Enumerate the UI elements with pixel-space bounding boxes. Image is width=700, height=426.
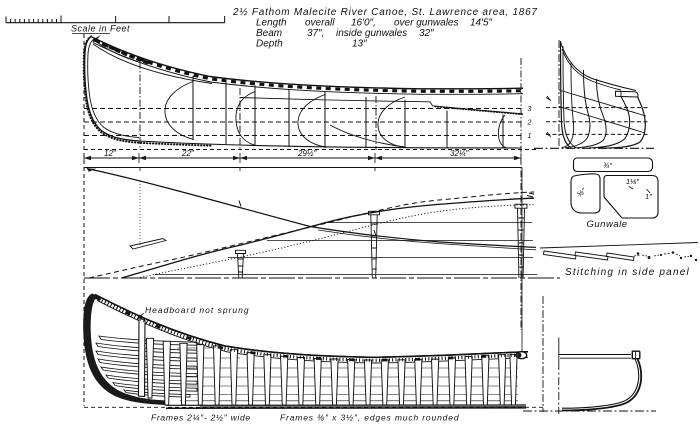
svg-text:3: 3 <box>528 106 532 113</box>
svg-text:Frames 2¼″- 2½″ wide: Frames 2¼″- 2½″ wide <box>151 413 251 423</box>
svg-text:22″: 22″ <box>181 149 195 158</box>
svg-text:29½″: 29½″ <box>297 149 318 158</box>
svg-text:1⅛″: 1⅛″ <box>626 177 639 186</box>
svg-text:12″: 12″ <box>104 149 117 158</box>
svg-text:Stitching in side panel: Stitching in side panel <box>565 267 690 278</box>
svg-text:Headboard not sprung: Headboard not sprung <box>145 305 250 315</box>
svg-text:1: 1 <box>528 133 532 140</box>
svg-text:1″: 1″ <box>645 192 652 201</box>
svg-text:¾″: ¾″ <box>603 161 612 170</box>
svg-text:2½ Fathom Malecite River Canoe: 2½ Fathom Malecite River Canoe, St. Lawr… <box>232 7 538 18</box>
svg-text:Scale in Feet: Scale in Feet <box>71 24 130 34</box>
svg-text:2: 2 <box>527 120 532 127</box>
svg-text:32¼″: 32¼″ <box>450 149 470 158</box>
svg-text:Frames ⅜″ x 3½″, edges much ro: Frames ⅜″ x 3½″, edges much rounded <box>280 413 459 423</box>
svg-text:Gunwale: Gunwale <box>587 219 628 230</box>
